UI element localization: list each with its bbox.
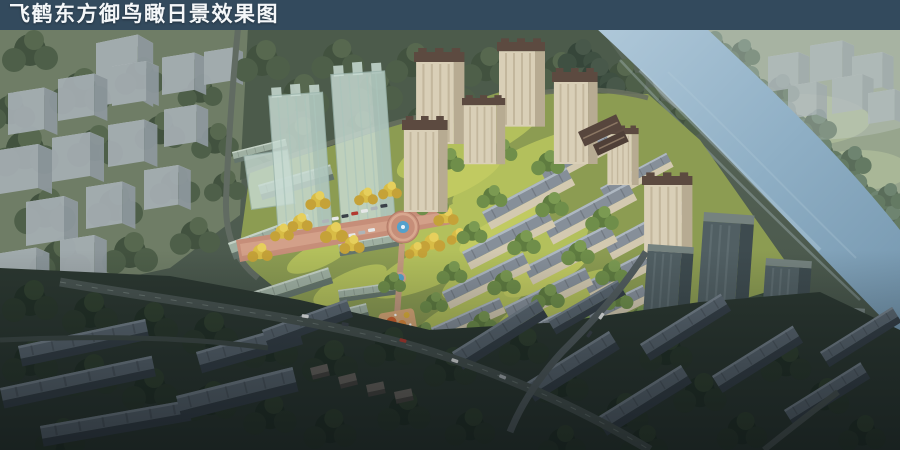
massing-cube [162,53,206,96]
massing-cube [86,182,135,230]
shadow-overlay [0,250,900,450]
residential-tower [402,116,448,212]
massing-cube [164,105,208,148]
massing-cube [0,144,52,194]
massing-cube [58,74,107,122]
massing-cube [52,132,104,182]
screenshot-root: 飞鹤东方御鸟瞰日景效果图 [0,0,900,450]
massing-cube [8,88,57,136]
page-title: 飞鹤东方御鸟瞰日景效果图 [0,0,279,30]
title-bar: 飞鹤东方御鸟瞰日景效果图 [0,0,900,30]
aerial-rendering [0,0,900,450]
massing-cube [144,165,191,210]
residential-tower [552,68,598,164]
massing-cube [112,61,159,106]
residential-tower [462,95,505,164]
glass-tower [268,82,332,235]
massing-cube [108,120,157,168]
fountain-jet [401,225,405,229]
massing-cube [26,196,78,246]
